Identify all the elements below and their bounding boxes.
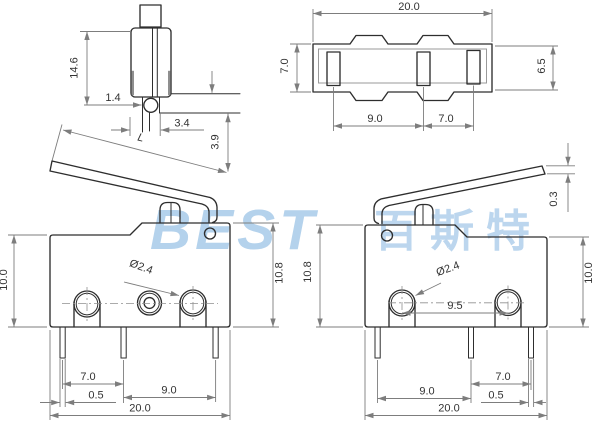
pin-left (60, 327, 65, 358)
view-bottom: 20.0 7.0 6.5 9.0 7.0 (279, 1, 558, 131)
pin-left-rv (375, 327, 380, 358)
dim-label-6-5: 6.5 (536, 58, 548, 73)
pin-middle (121, 327, 126, 358)
dim-label-hole-dia-left: Ø2.4 (128, 257, 155, 276)
dim-label-7-0-pins-right: 7.0 (495, 371, 510, 383)
terminal-slot-right (467, 51, 480, 85)
terminal-slot-left (327, 52, 340, 86)
dim-label-top-20-0: 20.0 (398, 1, 419, 13)
pivot-hole-left-view (205, 228, 216, 239)
actuator-nub-right-view (415, 205, 433, 226)
center-hole-outer (138, 291, 162, 315)
view-front-right: 0.3 10.8 10.0 Ø2.4 9.5 9.0 7.0 0 (302, 143, 595, 420)
dim-label-3-9: 3.9 (210, 134, 222, 149)
roller-pin-circle (144, 98, 158, 112)
pin-middle-rv (469, 327, 474, 358)
dim-label-3-4: 3.4 (174, 118, 189, 130)
dim-label-10-0-left: 10.0 (0, 269, 10, 290)
lever-left-view (50, 161, 217, 223)
plunger-button-outline (140, 5, 161, 27)
dim-label-1-4: 1.4 (105, 92, 120, 104)
dim-label-10-0-right: 10.0 (583, 262, 595, 283)
dim-label-20-0-left: 20.0 (129, 403, 150, 415)
pivot-hole-right-view (382, 230, 393, 241)
center-hole-inner (144, 298, 155, 309)
pin-right-rv (529, 327, 534, 358)
dim-label-hole-dia-right: Ø2.4 (435, 259, 462, 278)
dim-label-7-0-depth: 7.0 (279, 58, 291, 73)
dim-label-20-0-right: 20.0 (438, 403, 459, 415)
dim-label-lever-length: L (136, 132, 145, 145)
plunger-housing-outline (131, 28, 171, 97)
dim-label-14-6: 14.6 (69, 57, 81, 78)
pin-right (213, 327, 218, 358)
dim-label-9-0-pins-left: 9.0 (161, 385, 176, 397)
dim-label-9-0-pins-right: 9.0 (419, 386, 434, 398)
terminal-slot-middle (417, 52, 430, 86)
view-plunger-detail: 14.6 1.4 3.4 3.9 L (52, 5, 240, 173)
microswitch-dimension-drawing: 14.6 1.4 3.4 3.9 L 20.0 (0, 0, 608, 429)
dim-label-10-8-right: 10.8 (302, 261, 314, 282)
dim-label-9-5: 9.5 (447, 300, 462, 312)
dim-label-0-5-right: 0.5 (488, 390, 503, 402)
dim-label-10-8-left: 10.8 (274, 262, 286, 283)
actuator-nub-left-view (160, 203, 180, 224)
dim-label-0-5-left: 0.5 (88, 390, 103, 402)
dim-label-9-0-pitch: 9.0 (367, 113, 382, 125)
view-front-left: 10.0 10.8 Ø2.4 7.0 0.5 9.0 20.0 (0, 161, 286, 420)
dim-label-7-0-pitch: 7.0 (438, 113, 453, 125)
dim-label-7-0-pins-left: 7.0 (80, 371, 95, 383)
lever-right-view (374, 166, 545, 224)
technical-drawing-page: BEST 百斯特 14.6 1.4 (0, 0, 608, 429)
dim-label-0-3: 0.3 (548, 191, 560, 206)
